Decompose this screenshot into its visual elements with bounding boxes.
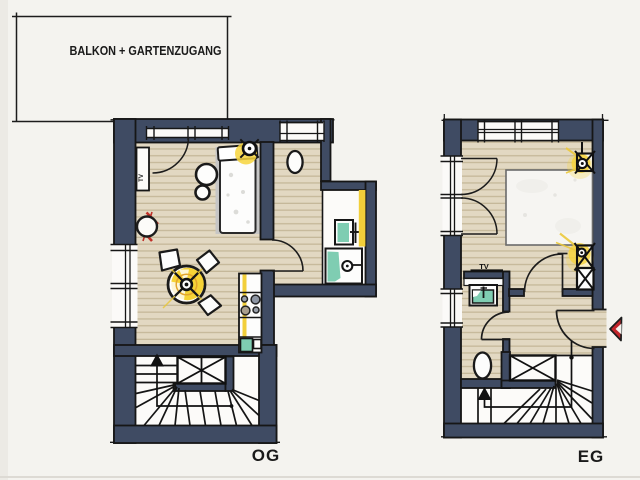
- svg-text:TV: TV: [479, 262, 489, 271]
- svg-text:EG: EG: [578, 447, 605, 466]
- svg-text:OG: OG: [252, 446, 280, 465]
- svg-text:BALKON + GARTENZUGANG: BALKON + GARTENZUGANG: [70, 44, 222, 58]
- svg-text:TV: TV: [139, 174, 145, 182]
